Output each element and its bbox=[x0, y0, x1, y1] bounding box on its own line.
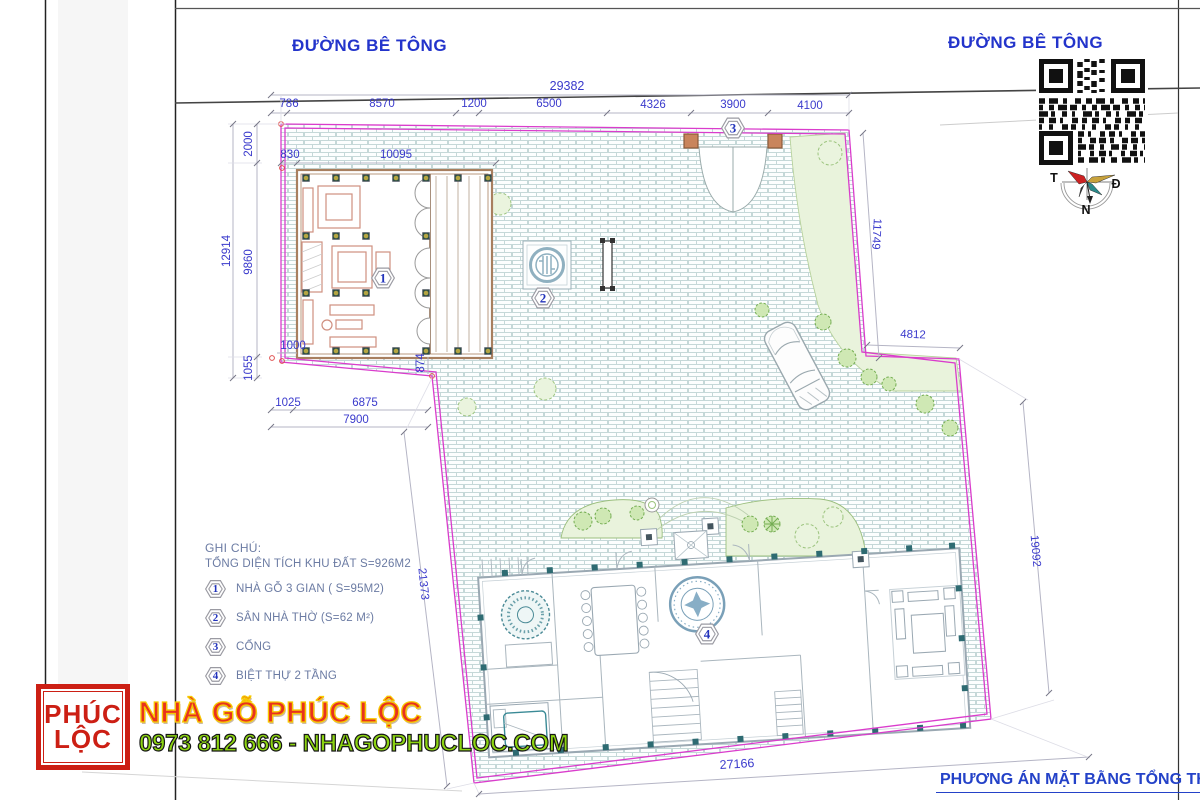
dim-left-2000: 2000 bbox=[243, 131, 255, 157]
dim-top-seg-2: 8570 bbox=[369, 98, 395, 110]
dim-south-27166: 27166 bbox=[719, 756, 755, 772]
wooden-house bbox=[297, 170, 492, 358]
dim-left-1055: 1055 bbox=[243, 355, 255, 381]
dim-house-10095: 10095 bbox=[380, 149, 412, 161]
dim-top-seg-1: 786 bbox=[279, 98, 298, 110]
dim-below-6875: 6875 bbox=[352, 397, 378, 409]
compass-west-label: T bbox=[1050, 171, 1058, 185]
legend-subtitle: TỔNG DIỆN TÍCH KHU ĐẤT S=926M2 bbox=[205, 558, 411, 570]
road-label-left: ĐƯỜNG BÊ TÔNG bbox=[292, 36, 447, 56]
compass-east-label: Đ bbox=[1111, 177, 1120, 191]
brand-contact: 0973 812 666 - NHAGOPHUCLOC.COM bbox=[139, 731, 569, 756]
dim-right-11749: 11749 bbox=[869, 218, 883, 250]
road-label-right: ĐƯỜNG BÊ TÔNG bbox=[948, 33, 1103, 53]
dim-veranda-874: 874 bbox=[415, 353, 427, 372]
marker-yard: 2 bbox=[531, 288, 555, 309]
dim-top-seg-4: 6500 bbox=[536, 98, 562, 110]
legend: GHI CHÚ: TỔNG DIỆN TÍCH KHU ĐẤT S=926M2 … bbox=[205, 541, 411, 686]
brand-logo: PHÚC LỘC bbox=[36, 684, 130, 770]
site-plan-drawing bbox=[0, 0, 1200, 800]
site-plan-sheet: ĐƯỜNG BÊ TÔNG ĐƯỜNG BÊ TÔNG 29382 786 85… bbox=[0, 0, 1200, 800]
legend-item-gate: 3 CỔNG bbox=[205, 637, 411, 657]
legend-item-house: 1 NHÀ GỖ 3 GIAN ( S=95M2) bbox=[205, 579, 411, 599]
dim-house-1000: 1000 bbox=[280, 340, 306, 352]
legend-title: GHI CHÚ: bbox=[205, 541, 411, 555]
compass-south-label: N bbox=[1081, 203, 1090, 217]
qr-code bbox=[1036, 56, 1148, 168]
dim-right-4812: 4812 bbox=[900, 329, 926, 342]
legend-item-yard: 2 SÂN NHÀ THỜ (S=62 M²) bbox=[205, 608, 411, 628]
marker-villa: 4 bbox=[695, 624, 719, 645]
legend-item-villa: 4 BIỆT THỰ 2 TẦNG bbox=[205, 666, 411, 686]
dim-top-seg-3: 1200 bbox=[461, 98, 487, 110]
legend-badge-3: 3 bbox=[205, 638, 226, 656]
brand-banner: PHÚC LỘC NHÀ GỖ PHÚC LỘC 0973 812 666 - … bbox=[36, 684, 569, 770]
marker-house: 1 bbox=[371, 268, 395, 289]
plan-title: PHƯƠNG ÁN MẶT BẰNG TỔNG THỂ bbox=[936, 771, 1200, 793]
dim-left-9860: 9860 bbox=[243, 249, 255, 275]
legend-badge-2: 2 bbox=[205, 609, 226, 627]
brand-title: NHÀ GỖ PHÚC LỘC bbox=[139, 698, 569, 728]
dim-left-12914: 12914 bbox=[221, 235, 233, 267]
dim-top-total: 29382 bbox=[550, 79, 585, 93]
dim-below-7900: 7900 bbox=[343, 414, 369, 426]
dim-below-1025: 1025 bbox=[275, 397, 301, 409]
dim-house-830: 830 bbox=[280, 149, 299, 161]
dim-top-seg-6: 3900 bbox=[720, 99, 746, 111]
legend-badge-4: 4 bbox=[205, 667, 226, 685]
logo-line2: LỘC bbox=[54, 727, 112, 752]
dim-top-seg-7: 4100 bbox=[797, 100, 823, 112]
marker-gate: 3 bbox=[721, 118, 745, 139]
legend-badge-1: 1 bbox=[205, 580, 226, 598]
dim-top-seg-5: 4326 bbox=[640, 99, 666, 111]
